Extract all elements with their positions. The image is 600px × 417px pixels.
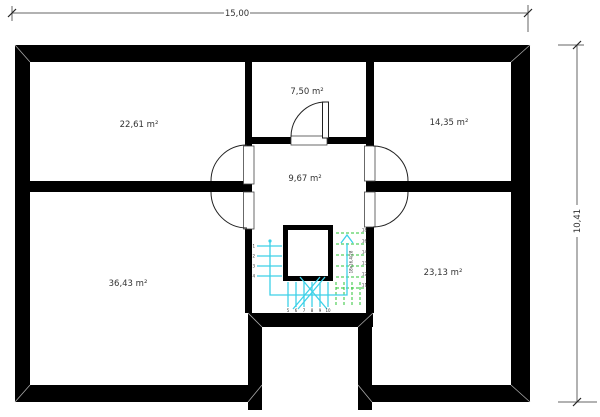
door-leaf-top-left-room	[244, 146, 255, 184]
door-leaf-bottom-right-room	[365, 192, 376, 227]
door-swing-bottom-left-room	[211, 192, 247, 228]
dimension-width-label: 15,00	[225, 9, 249, 19]
chimney-void	[288, 230, 328, 276]
outer-wall-right	[511, 45, 530, 402]
door-leaf-bottom-left-room	[244, 192, 255, 229]
stairwell-bottom-wall	[248, 313, 373, 327]
interior-wall-horizontal-left	[30, 181, 245, 192]
doors	[211, 102, 408, 229]
room-area-label-top-right: 14,35 m²	[430, 118, 469, 128]
door-leaf-top-right-room	[365, 146, 376, 181]
step-number: 13	[362, 261, 368, 266]
floor-plan-drawing: 1 2 3 4 5 6 7 8 9 10 18 16 14 13 12 11 1…	[0, 0, 600, 417]
step-number: 5	[287, 308, 290, 313]
step-number: 18	[362, 228, 368, 233]
step-number: 7	[303, 308, 306, 313]
dimension-height-label: 10,41	[573, 209, 583, 233]
door-swing-top-right-room	[373, 146, 408, 181]
step-number: 2	[252, 254, 255, 259]
step-number: 6	[295, 308, 298, 313]
step-number: 12	[362, 272, 368, 277]
step-number: 10	[325, 308, 331, 313]
interior-wall-vertical-right	[366, 62, 374, 313]
room-area-label-top-middle: 7,50 m²	[290, 87, 323, 97]
interior-wall-horizontal-right	[374, 181, 511, 192]
interior-wall-vertical-left	[245, 62, 252, 313]
dimension-top: 15,00	[8, 5, 532, 32]
walls	[15, 45, 530, 410]
room-area-label-top-left: 22,61 m²	[120, 120, 159, 130]
step-number: 3	[252, 264, 255, 269]
room-area-label-hall: 9,67 m²	[288, 174, 321, 184]
stair-break-line	[293, 277, 320, 309]
dimension-right: 10,41	[558, 41, 597, 406]
stair-annotation: 18x16,4/28	[349, 250, 354, 273]
step-number: 11	[362, 283, 368, 288]
door-swing-bottom-right-room	[373, 192, 408, 227]
room-area-label-bottom-left: 36,43 m²	[109, 279, 148, 289]
floor-plan-canvas: 1 2 3 4 5 6 7 8 9 10 18 16 14 13 12 11 1…	[0, 0, 600, 417]
step-number: 4	[252, 274, 255, 279]
chimney-shaft	[283, 225, 333, 281]
stair-bay-wall-left	[248, 327, 262, 410]
step-number: 16	[362, 239, 368, 244]
outer-wall-left	[15, 45, 30, 402]
step-number: 8	[311, 308, 314, 313]
stair-bay-wall-right	[358, 327, 372, 410]
door-threshold-top-middle-room	[291, 136, 327, 145]
step-number: 9	[319, 308, 322, 313]
door-leaf-top-middle-room	[323, 102, 329, 138]
outer-wall-bottom-right	[358, 385, 530, 402]
outer-wall-bottom-left	[15, 385, 262, 402]
step-number: 14	[362, 250, 368, 255]
step-number: 1	[252, 244, 255, 249]
outer-wall-top	[15, 45, 530, 62]
room-area-label-bottom-right: 23,13 m²	[424, 268, 463, 278]
door-swing-top-left-room	[211, 145, 247, 181]
door-swing-top-middle-room	[291, 102, 326, 137]
walkline-arrow-icon	[341, 235, 353, 243]
